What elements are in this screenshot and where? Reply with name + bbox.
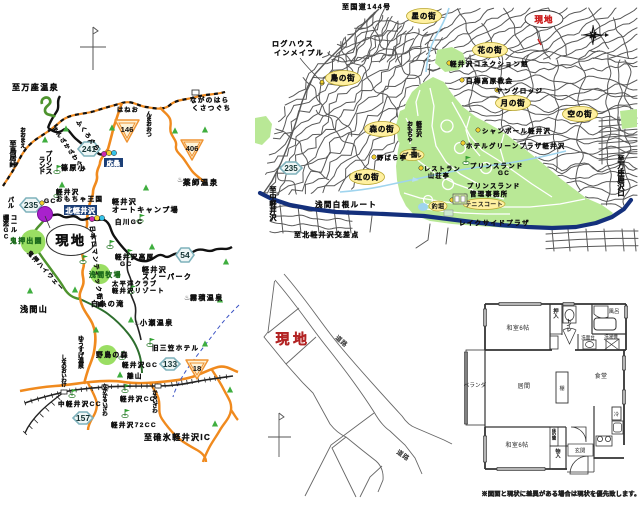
svg-text:軽井沢: 軽井沢 xyxy=(56,187,80,196)
svg-text:旧三笠ホテル: 旧三笠ホテル xyxy=(152,343,199,352)
svg-text:軽井沢高原: 軽井沢高原 xyxy=(115,252,155,261)
svg-text:ベランダ: ベランダ xyxy=(464,381,487,389)
svg-text:ランド: ランド xyxy=(39,156,46,176)
svg-text:洗面台: 洗面台 xyxy=(581,334,595,341)
svg-text:インメイプル: インメイプル xyxy=(274,48,324,57)
svg-text:釣堀: 釣堀 xyxy=(432,203,445,211)
svg-text:霧積温泉: 霧積温泉 xyxy=(189,293,224,302)
svg-text:プリンスランド: プリンスランド xyxy=(470,161,524,170)
svg-text:至鳥居峠: 至鳥居峠 xyxy=(10,140,17,169)
svg-text:ゆうすげ温泉: ゆうすげ温泉 xyxy=(77,335,85,370)
svg-text:浅間白根ルート: 浅間白根ルート xyxy=(315,199,377,209)
svg-text:GC: GC xyxy=(498,170,510,177)
svg-text:至国道144号: 至国道144号 xyxy=(342,2,391,11)
svg-text:18: 18 xyxy=(193,364,202,373)
svg-text:至北軽井沢交差点: 至北軽井沢交差点 xyxy=(294,230,360,239)
svg-text:プリンスランド: プリンスランド xyxy=(467,181,521,190)
svg-text:棚: 棚 xyxy=(559,385,564,392)
svg-text:プリンス: プリンス xyxy=(46,149,53,176)
svg-text:鳥の街: 鳥の街 xyxy=(331,73,356,83)
svg-text:至碓氷軽井沢IC: 至碓氷軽井沢IC xyxy=(144,432,211,442)
svg-text:レイクサイドプラザ: レイクサイドプラザ xyxy=(459,218,530,227)
svg-text:軽井沢GC: 軽井沢GC xyxy=(122,360,158,369)
svg-text:235: 235 xyxy=(284,164,298,173)
svg-text:星の街: 星の街 xyxy=(412,11,437,21)
svg-text:野ばら亭: 野ばら亭 xyxy=(377,154,407,162)
svg-text:至万座鹿沢口: 至万座鹿沢口 xyxy=(617,155,626,198)
svg-text:テニスコート: テニスコート xyxy=(465,202,503,209)
svg-text:至中軽井沢: 至中軽井沢 xyxy=(270,186,278,222)
svg-text:応桑: 応桑 xyxy=(106,159,121,168)
svg-text:花の街: 花の街 xyxy=(478,45,503,55)
svg-text:※図面と現状に差異がある場合は現状を優先致します。: ※図面と現状に差異がある場合は現状を優先致します。 xyxy=(481,490,640,498)
svg-text:現地: 現地 xyxy=(55,233,86,248)
svg-text:白糸の滝: 白糸の滝 xyxy=(91,299,125,308)
svg-text:現地: 現地 xyxy=(534,15,553,25)
svg-text:ながのはら: ながのはら xyxy=(190,95,230,104)
svg-text:トイレ: トイレ xyxy=(566,319,571,334)
svg-text:居間: 居間 xyxy=(518,383,531,390)
svg-text:ヤングロッジ: ヤングロッジ xyxy=(496,86,543,95)
svg-text:洗濯機: 洗濯機 xyxy=(604,333,618,340)
svg-text:しなのおいわけ: しなのおいわけ xyxy=(61,354,67,388)
svg-text:146: 146 xyxy=(121,125,134,134)
svg-text:おおまえ: おおまえ xyxy=(20,127,26,149)
svg-text:軽井沢コネクション館: 軽井沢コネクション館 xyxy=(450,59,529,68)
svg-text:薬師温泉: 薬師温泉 xyxy=(183,177,219,187)
svg-text:和室6帖: 和室6帖 xyxy=(507,324,530,332)
svg-text:風呂: 風呂 xyxy=(609,308,620,315)
svg-text:133: 133 xyxy=(163,359,177,369)
svg-text:離山: 離山 xyxy=(127,371,143,380)
svg-text:野鳥の森: 野鳥の森 xyxy=(96,350,129,359)
svg-text:ホテルグリーンプラザ軽井沢: ホテルグリーンプラザ軽井沢 xyxy=(466,141,566,150)
svg-text:ログハウス: ログハウス xyxy=(272,39,314,48)
svg-text:コール: コール xyxy=(11,215,17,234)
svg-text:くさつぐち: くさつぐち xyxy=(192,104,232,112)
svg-text:北軽井沢: 北軽井沢 xyxy=(66,206,96,215)
svg-text:浅間山: 浅間山 xyxy=(20,304,48,314)
svg-text:235: 235 xyxy=(24,200,38,210)
svg-text:山荘亭: 山荘亭 xyxy=(428,172,450,180)
svg-text:中軽井沢CC: 中軽井沢CC xyxy=(58,399,102,408)
svg-text:白川GC: 白川GC xyxy=(115,217,143,226)
svg-text:軽井沢: 軽井沢 xyxy=(416,120,422,138)
svg-text:GC: GC xyxy=(44,198,57,205)
svg-text:んまおおつ: んまおおつ xyxy=(146,111,152,138)
svg-text:GC: GC xyxy=(120,261,133,268)
svg-text:太平洋クラブ: 太平洋クラブ xyxy=(112,280,158,288)
svg-text:軽井沢: 軽井沢 xyxy=(112,197,137,206)
svg-text:和室6帖: 和室6帖 xyxy=(506,441,529,449)
svg-text:オートキャンプ場: オートキャンプ場 xyxy=(112,205,179,214)
svg-text:おもちゃ: おもちゃ xyxy=(407,121,413,144)
svg-text:月の街: 月の街 xyxy=(500,98,526,108)
svg-text:空の街: 空の街 xyxy=(568,109,593,119)
svg-text:はねお: はねお xyxy=(117,106,139,114)
svg-text:冷: 冷 xyxy=(614,411,619,418)
svg-text:軽井沢72CC: 軽井沢72CC xyxy=(111,420,157,429)
svg-text:嬬恋GC: 嬬恋GC xyxy=(2,214,9,240)
svg-text:パル: パル xyxy=(8,196,14,210)
svg-text:レストラン: レストラン xyxy=(424,166,461,173)
svg-text:軽井沢: 軽井沢 xyxy=(142,265,167,274)
svg-text:鬼押出園: 鬼押出園 xyxy=(10,236,43,245)
svg-text:シャンボール軽井沢: シャンボール軽井沢 xyxy=(482,126,551,135)
svg-text:スノーパーク: スノーパーク xyxy=(142,272,192,281)
svg-text:白樺高原教会: 白樺高原教会 xyxy=(466,76,513,85)
svg-text:押入: 押入 xyxy=(553,307,559,320)
svg-text:管理事務所: 管理事務所 xyxy=(470,189,508,198)
svg-text:至万座温泉: 至万座温泉 xyxy=(12,82,59,92)
svg-text:軽井沢リゾート: 軽井沢リゾート xyxy=(112,287,165,295)
svg-text:浅間牧場: 浅間牧場 xyxy=(89,270,122,279)
svg-text:虹の街: 虹の街 xyxy=(355,172,380,182)
svg-text:なかかるいざわ: なかかるいざわ xyxy=(102,383,108,417)
svg-text:157: 157 xyxy=(76,413,90,423)
svg-text:物入: 物入 xyxy=(555,448,560,459)
svg-text:篠原小: 篠原小 xyxy=(61,163,86,172)
svg-text:406: 406 xyxy=(186,144,199,153)
svg-text:軽井沢CC: 軽井沢CC xyxy=(120,394,156,403)
svg-text:おもちゃ王国: おもちゃ王国 xyxy=(56,194,103,203)
svg-text:玄関: 玄関 xyxy=(575,447,586,455)
svg-text:小瀬温泉: 小瀬温泉 xyxy=(139,318,174,327)
svg-text:王国: 王国 xyxy=(411,147,417,159)
svg-text:食堂: 食堂 xyxy=(595,372,608,380)
svg-text:54: 54 xyxy=(180,250,190,260)
svg-text:現地: 現地 xyxy=(276,331,311,347)
svg-text:森の街: 森の街 xyxy=(370,124,395,134)
